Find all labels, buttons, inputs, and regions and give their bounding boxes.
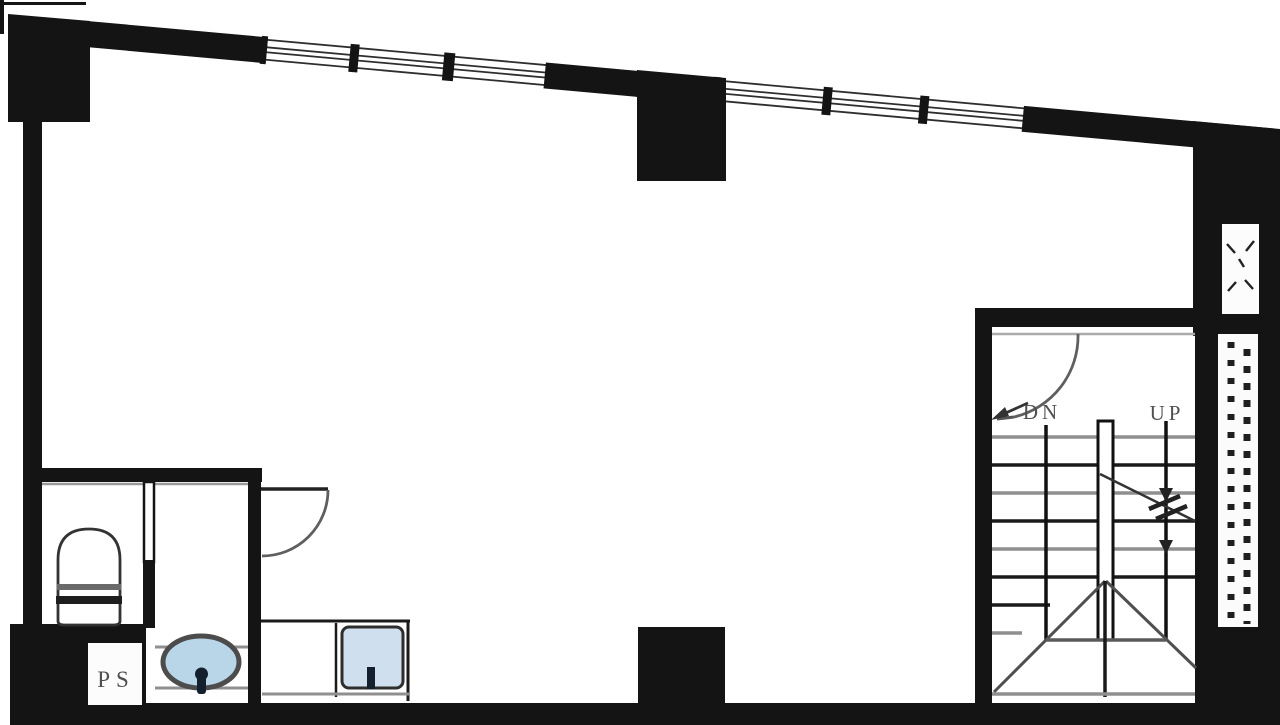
pipe-shaft-label: PS (97, 667, 135, 692)
stair-west-wall (975, 308, 992, 722)
frame-tick (0, 2, 86, 5)
sink-icon (342, 627, 403, 689)
west-wall (23, 118, 42, 628)
toilet-partition (144, 482, 154, 562)
block-bottom-right (1195, 624, 1280, 724)
floor-plan: PS DN UP (0, 0, 1280, 725)
stair-down-label: DN (1023, 400, 1061, 424)
annotation-strip (1218, 334, 1258, 627)
toilet-icon (56, 529, 122, 625)
washroom-east-wall (248, 468, 261, 706)
hatch-box (1222, 224, 1259, 314)
east-wall (1258, 334, 1280, 627)
column-top-left (8, 14, 90, 122)
column-bottom-center (638, 627, 725, 707)
evacuation-hatch-symbol (1222, 224, 1259, 314)
toilet-partition-lower (143, 560, 155, 628)
toilet-room-top-wall (23, 468, 262, 482)
floor-plan-canvas: PS DN UP (0, 0, 1280, 725)
vertical-text-marks (1218, 334, 1258, 627)
stair-top-wall (975, 308, 1218, 327)
frame-tick (0, 0, 4, 34)
column-top-center (637, 70, 726, 181)
stair-east-wall (1195, 327, 1218, 627)
sink-faucet (367, 667, 375, 689)
